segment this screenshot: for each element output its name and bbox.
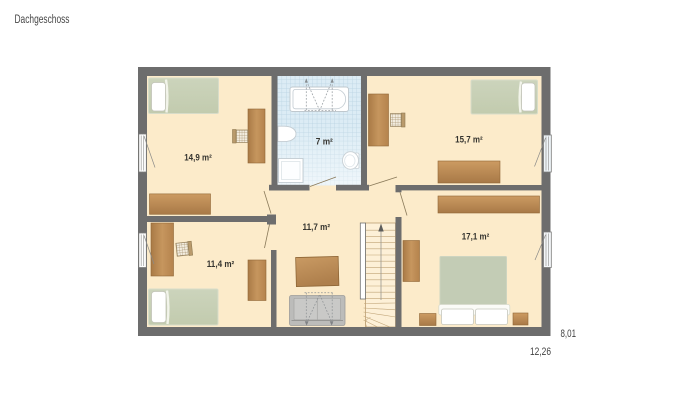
svg-text:8,01: 8,01 [561, 328, 577, 340]
svg-text:15,7 m²: 15,7 m² [455, 135, 483, 145]
svg-text:17,1 m²: 17,1 m² [462, 232, 490, 242]
svg-text:7 m²: 7 m² [316, 136, 333, 146]
svg-text:11,7 m²: 11,7 m² [303, 222, 331, 232]
svg-text:14,9 m²: 14,9 m² [184, 153, 212, 163]
svg-text:12,26: 12,26 [530, 346, 551, 358]
svg-text:Dachgeschoss: Dachgeschoss [15, 14, 70, 26]
svg-text:11,4 m²: 11,4 m² [207, 259, 235, 269]
